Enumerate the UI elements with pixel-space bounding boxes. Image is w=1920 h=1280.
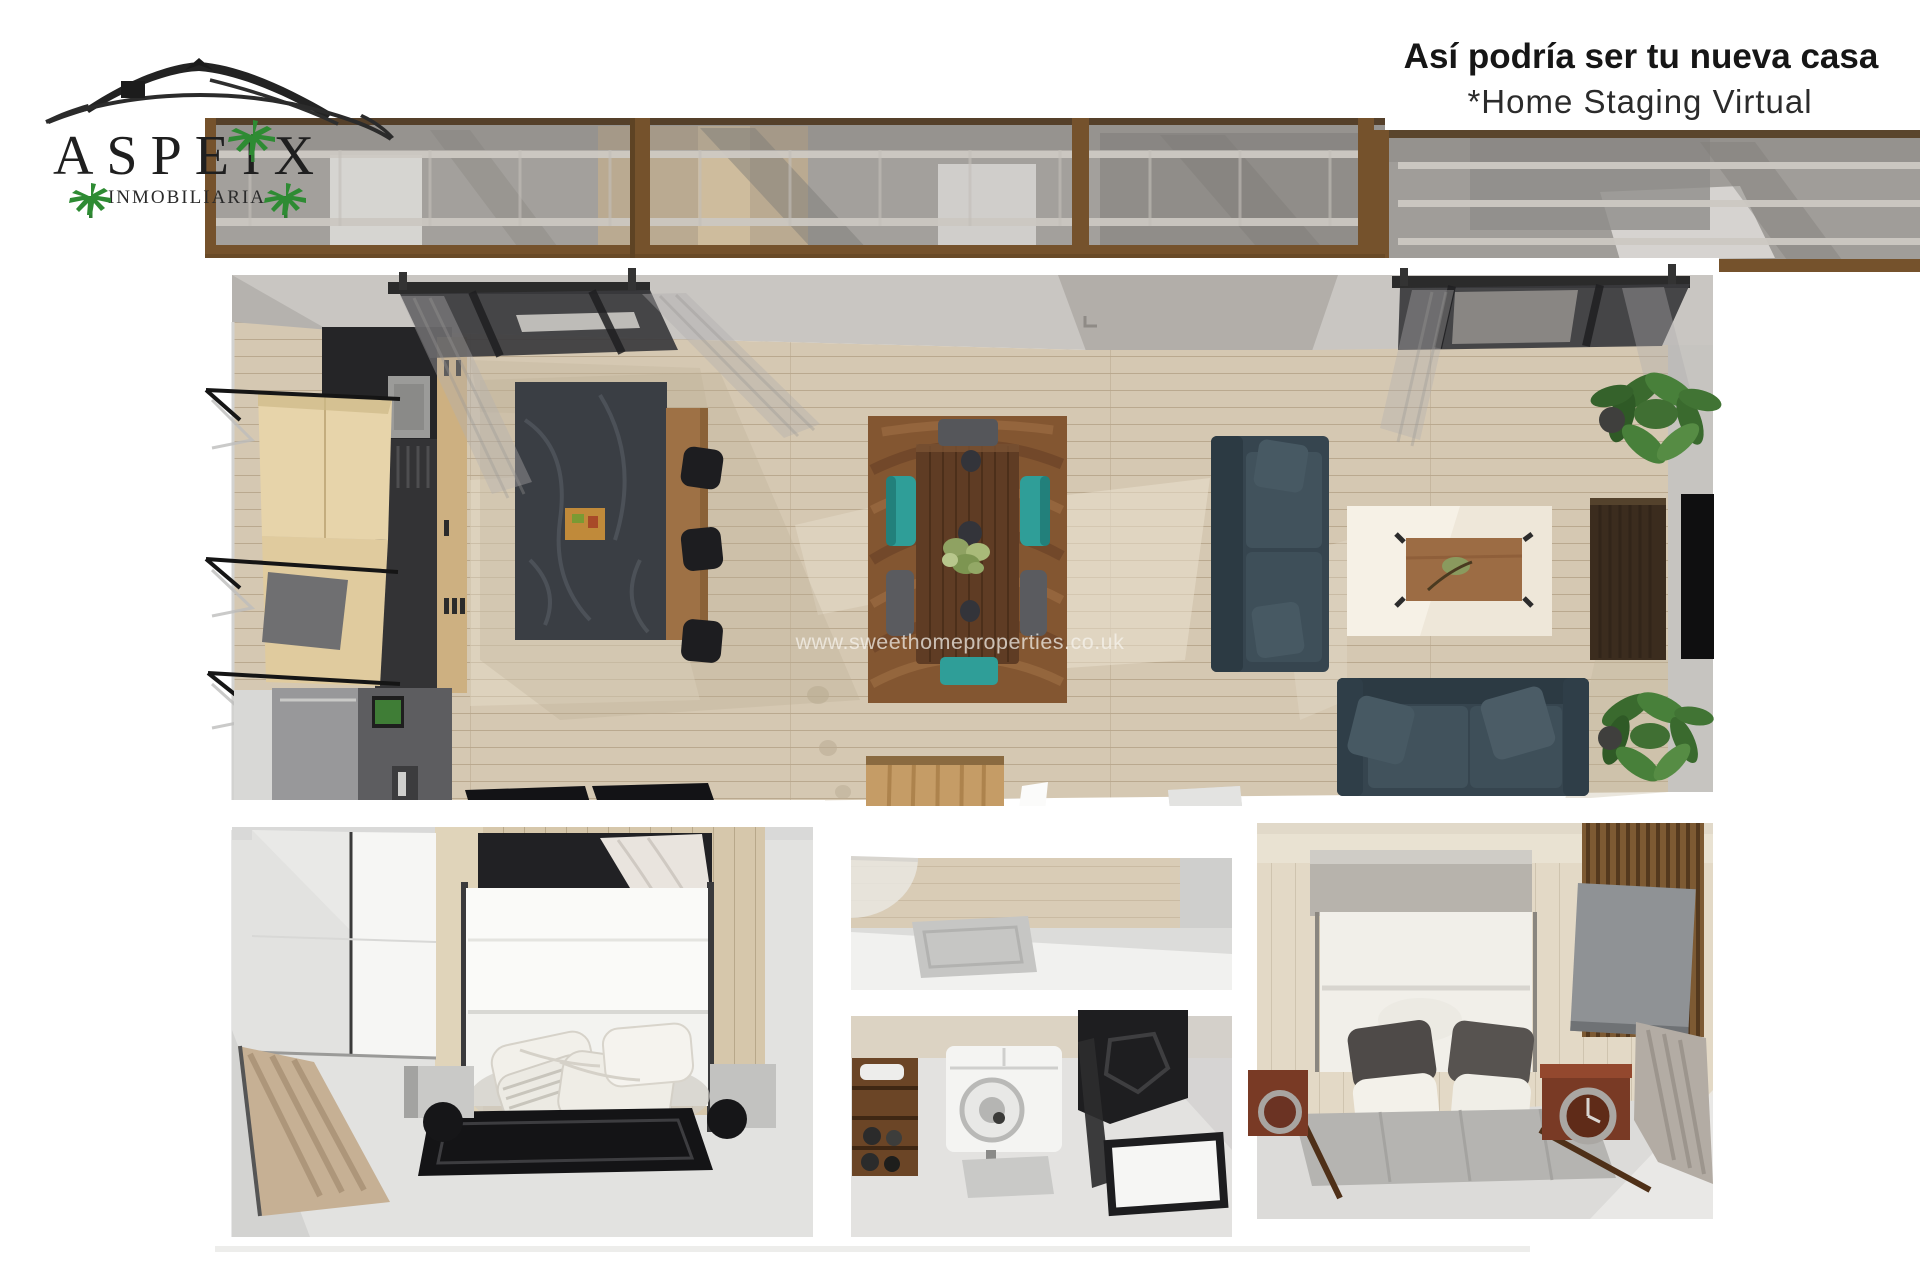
svg-text:*Home Staging Virtual: *Home Staging Virtual: [1467, 83, 1812, 120]
svg-text:ASPEIX: ASPEIX: [53, 125, 327, 187]
svg-text:Así podría ser tu nueva casa: Así podría ser tu nueva casa: [1404, 37, 1879, 76]
svg-text:www.sweethomeproperties.co.uk: www.sweethomeproperties.co.uk: [795, 630, 1125, 654]
svg-text:INMOBILIARIA: INMOBILIARIA: [108, 187, 266, 208]
